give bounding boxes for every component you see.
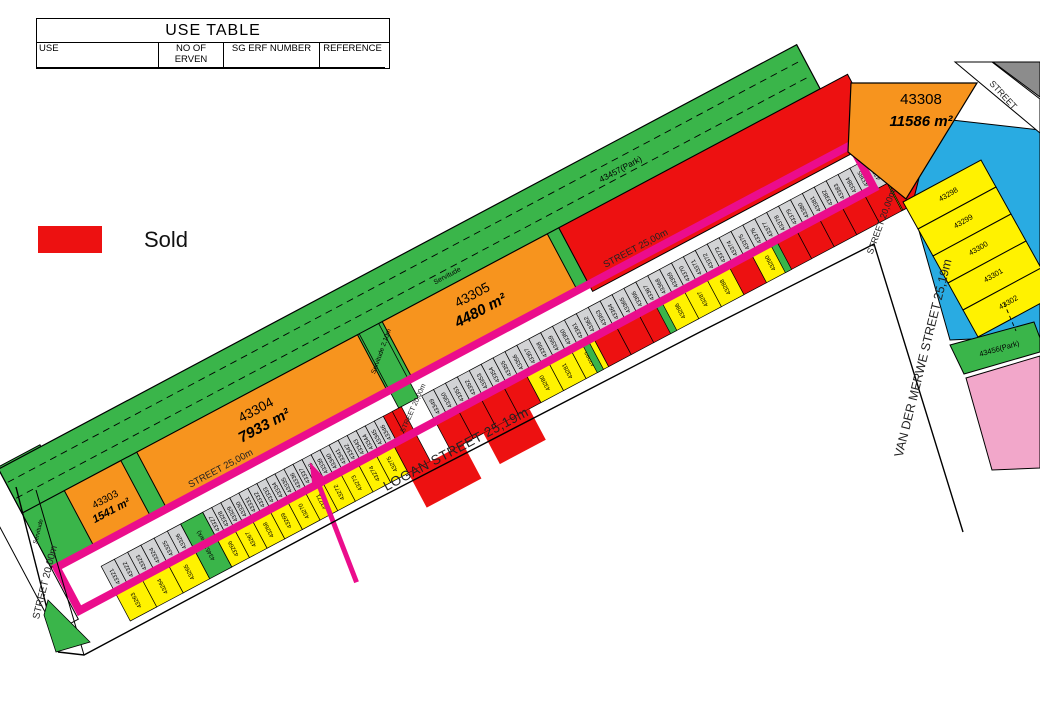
parcel-id: 43308 [900, 91, 942, 108]
site-map: 4332143322433234332443325433264332743328… [0, 0, 1040, 720]
street-label-van-der-merwe: VAN DER MERWE STREET 25,19m [892, 258, 955, 459]
parcel-43319-business [966, 356, 1040, 470]
township-strip: 4332143322433234332443325433264332743328… [0, 8, 981, 718]
plan-page: { "table": { "title": "USE TABLE", "head… [0, 0, 1040, 720]
parcel-area: 11586 m² [889, 113, 953, 130]
